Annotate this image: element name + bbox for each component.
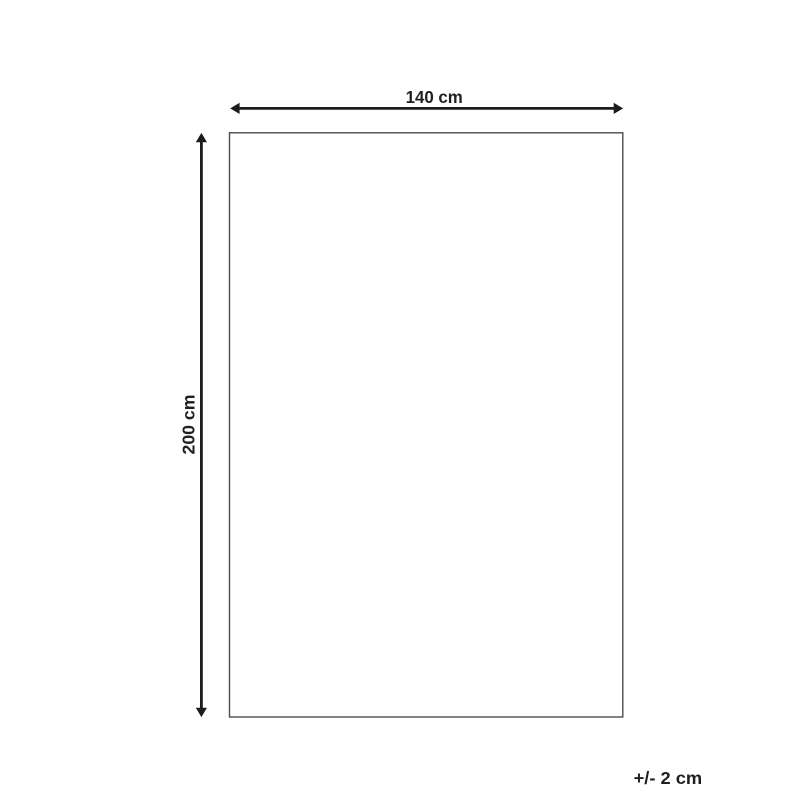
svg-text:+/- 2 cm: +/- 2 cm: [634, 768, 703, 788]
svg-text:200 cm: 200 cm: [179, 395, 199, 455]
svg-text:140 cm: 140 cm: [406, 87, 463, 107]
